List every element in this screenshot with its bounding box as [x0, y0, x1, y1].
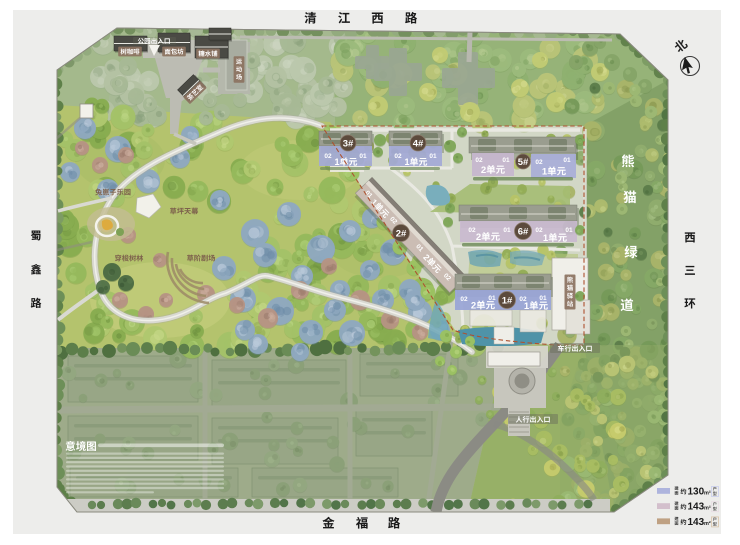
svg-text:143: 143 — [688, 517, 705, 528]
svg-text:4#: 4# — [413, 138, 424, 149]
svg-text:01: 01 — [502, 157, 510, 164]
svg-text:01: 01 — [539, 295, 547, 302]
svg-text:2: 2 — [481, 165, 486, 176]
svg-text:3#: 3# — [343, 138, 354, 149]
svg-text:02: 02 — [535, 159, 543, 166]
svg-text:1: 1 — [405, 157, 410, 167]
svg-text:02: 02 — [324, 153, 332, 160]
svg-text:2: 2 — [476, 232, 481, 243]
svg-text:01: 01 — [429, 153, 437, 160]
svg-text:143: 143 — [688, 502, 705, 513]
svg-text:01: 01 — [359, 153, 367, 160]
svg-text:01: 01 — [565, 227, 573, 234]
svg-text:2#: 2# — [396, 228, 407, 239]
svg-text:m²: m² — [704, 490, 711, 497]
svg-text:01: 01 — [563, 157, 571, 164]
svg-text:02: 02 — [475, 157, 483, 164]
svg-text:1: 1 — [335, 157, 340, 167]
svg-text:02: 02 — [394, 153, 402, 160]
svg-text:02: 02 — [460, 296, 468, 303]
svg-text:130: 130 — [688, 487, 705, 498]
svg-text:1: 1 — [543, 233, 549, 244]
svg-text:6#: 6# — [518, 226, 529, 237]
svg-text:m²: m² — [704, 520, 711, 527]
svg-text:01: 01 — [503, 227, 511, 234]
svg-text:5#: 5# — [518, 157, 529, 168]
svg-text:1#: 1# — [502, 295, 513, 306]
svg-text:02: 02 — [535, 227, 543, 234]
svg-text:1: 1 — [542, 167, 548, 178]
svg-text:m²: m² — [704, 505, 711, 512]
svg-text:01: 01 — [488, 295, 496, 302]
svg-text:02: 02 — [468, 227, 476, 234]
